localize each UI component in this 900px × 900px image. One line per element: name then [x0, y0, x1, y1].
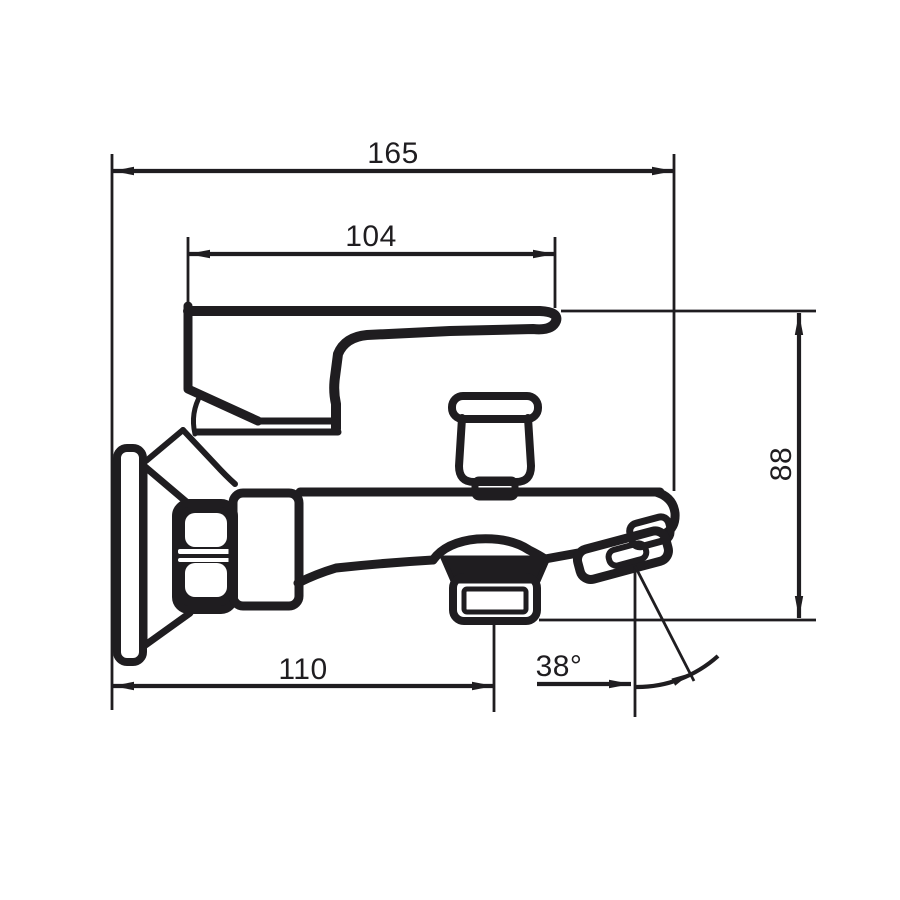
faucet-dimension-drawing: 165 104 88 110 38°: [0, 0, 900, 900]
technical-drawing-canvas: 165 104 88 110 38°: [0, 0, 900, 900]
diverter-knob: [452, 396, 538, 497]
lever-handle: [188, 306, 556, 432]
dim-label-body-top-length: 104: [345, 220, 397, 253]
handshower-outlet: [572, 515, 678, 582]
inlet-connector: [233, 493, 299, 606]
union-nut: [176, 503, 234, 610]
dim-label-handshower-angle: 38°: [536, 650, 583, 683]
spout-aerator: [443, 558, 548, 621]
dim-label-overall-height: 88: [765, 447, 798, 481]
wall-flange: [117, 448, 143, 662]
dim-label-total-depth: 165: [367, 137, 419, 170]
faucet-illustration: [117, 306, 678, 662]
dim-label-spout-reach: 110: [278, 653, 327, 686]
angle-slanted-reference-line: [635, 566, 694, 681]
